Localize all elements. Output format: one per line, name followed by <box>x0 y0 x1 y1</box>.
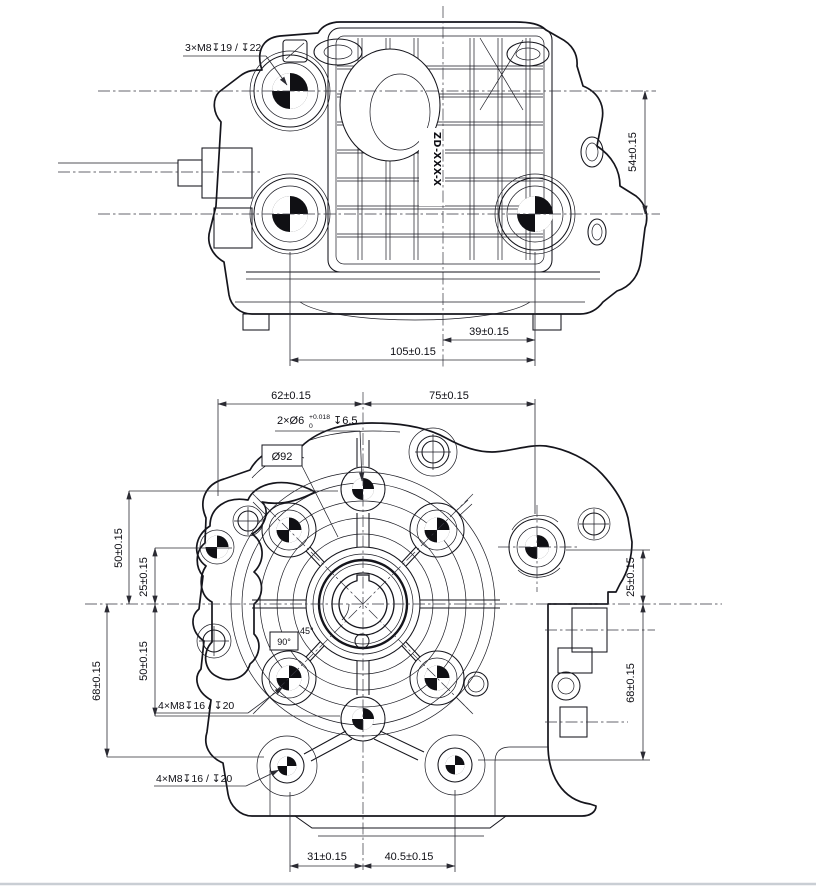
svg-text:4×M8↧16 / ↧20: 4×M8↧16 / ↧20 <box>158 700 234 712</box>
dim-31: 31±0.15 <box>307 851 347 863</box>
mount-boss-left <box>257 736 317 796</box>
pto-cluster-boss <box>498 505 580 592</box>
flange-hole-upper <box>233 506 263 536</box>
dim-62: 62±0.15 <box>271 390 311 402</box>
dim-50-upper: 50±0.15 <box>113 528 125 568</box>
dim-75: 75±0.15 <box>429 390 469 402</box>
front-view-centerlines <box>85 392 722 870</box>
dim-68-left: 68±0.15 <box>91 661 103 701</box>
side-mount-block <box>58 148 262 248</box>
engineering-drawing-sheet: ZD-XXX-X <box>0 0 816 891</box>
dim-40-5: 40.5±0.15 <box>385 851 434 863</box>
callout-flange-bolts-bottom: 4×M8↧16 / ↧20 <box>154 770 279 786</box>
dim-50-lower: 50±0.15 <box>138 641 150 681</box>
svg-text:↧6.5: ↧6.5 <box>333 415 358 427</box>
radial-ribs <box>252 438 500 761</box>
dim-54: 54±0.15 <box>627 132 639 172</box>
dim-105: 105±0.15 <box>390 346 436 358</box>
front-view <box>85 392 722 870</box>
svg-text:2×Ø6: 2×Ø6 <box>277 415 304 427</box>
dim-25-left: 25±0.15 <box>138 557 150 597</box>
svg-text:0: 0 <box>309 423 313 430</box>
flange-hole-lower <box>197 624 231 658</box>
svg-text:4×M8↧16 / ↧20: 4×M8↧16 / ↧20 <box>156 773 232 785</box>
dim-25-right: 25±0.15 <box>625 557 637 597</box>
angle-45: 45° <box>300 626 314 636</box>
right-flange-hole <box>578 508 610 540</box>
mount-boss-right <box>425 735 485 795</box>
part-number-label: ZD-XXX-X <box>431 132 442 187</box>
front-view-dimensions: 62±0.15 75±0.15 2×Ø6 +0.018 0 ↧6.5 Ø92 9… <box>91 390 650 872</box>
svg-text:Ø92: Ø92 <box>272 451 293 463</box>
crankcase-drawing: ZD-XXX-X <box>0 0 816 891</box>
dim-39: 39±0.15 <box>469 326 509 338</box>
top-view: ZD-XXX-X <box>58 6 660 368</box>
svg-text:+0.018: +0.018 <box>309 414 330 421</box>
flange-hole-mid-target <box>200 530 234 564</box>
angle-90: 90° <box>277 637 291 647</box>
callout-cover-bolts: 3×M8↧19 / ↧22 <box>185 42 261 54</box>
dim-68-right: 68±0.15 <box>625 663 637 703</box>
top-ear-hole <box>409 428 457 476</box>
pto-side-blocks <box>545 608 655 737</box>
